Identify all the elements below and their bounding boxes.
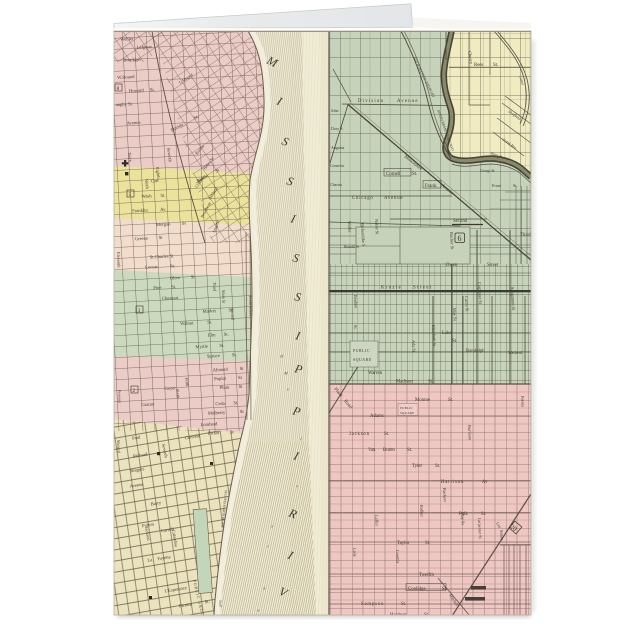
svg-text:Rees: Rees (474, 63, 483, 68)
svg-text:Third: Third (212, 282, 217, 292)
svg-text:John: John (331, 108, 339, 113)
svg-text:Elm: Elm (208, 332, 216, 337)
svg-text:anghy St.: anghy St. (116, 101, 134, 107)
svg-text:Madison: Madison (396, 380, 413, 385)
svg-text:SQUARE: SQUARE (400, 411, 414, 415)
svg-text:Reuben: Reuben (353, 295, 359, 309)
svg-text:Gratiot: Gratiot (141, 401, 155, 407)
svg-text:St.: St. (448, 398, 453, 403)
svg-text:Dory S.: Dory S. (331, 126, 343, 131)
svg-text:Carr: Carr (151, 178, 160, 183)
svg-text:Chestnut: Chestnut (162, 295, 179, 301)
svg-text:Twelfth: Twelfth (419, 573, 434, 578)
svg-text:St.: St. (219, 343, 224, 348)
svg-text:St.: St. (228, 307, 233, 312)
svg-text:Howard: Howard (129, 88, 145, 94)
svg-text:Webler: Webler (120, 36, 134, 42)
svg-text:Jackson: Jackson (349, 432, 370, 437)
svg-text:Frank.: Frank. (425, 184, 437, 189)
svg-text:Coolidge: Coolidge (408, 587, 426, 592)
svg-text:Owen: Owen (446, 263, 458, 268)
svg-text:Harrison: Harrison (441, 480, 464, 485)
svg-text:Olive: Olive (170, 275, 180, 281)
svg-text:Adams: Adams (370, 414, 384, 419)
svg-text:SQUARE: SQUARE (353, 358, 372, 362)
svg-text:Sixth: Sixth (175, 389, 181, 399)
svg-text:St.: St. (428, 380, 433, 385)
svg-text:Peoria: Peoria (520, 396, 526, 408)
svg-text:Kinzie: Kinzie (381, 286, 402, 291)
svg-text:St.: St. (204, 599, 210, 605)
svg-text:St.: St. (170, 263, 175, 268)
svg-text:Lisle: Lisle (352, 548, 357, 557)
svg-text:Trud: Trud (218, 600, 223, 607)
svg-text:PUBLIC: PUBLIC (353, 349, 370, 353)
svg-text:La: La (147, 557, 153, 563)
svg-text:Monroe: Monroe (415, 398, 430, 403)
svg-text:Spruce: Spruce (207, 353, 220, 359)
svg-text:Warren: Warren (368, 371, 383, 376)
svg-text:St.: St. (493, 63, 498, 68)
svg-text:W.Round: W.Round (117, 74, 135, 80)
svg-text:2: 2 (133, 388, 136, 394)
svg-text:St.: St. (150, 87, 155, 92)
svg-text:St.: St. (384, 432, 389, 437)
svg-text:Ceda: Ceda (215, 401, 225, 406)
svg-text:Front: Front (492, 183, 502, 188)
svg-text:Wash: Wash (141, 193, 152, 199)
svg-text:Almond: Almond (213, 367, 229, 373)
svg-text:Provost: Provost (117, 390, 122, 404)
svg-text:St.: St. (435, 464, 440, 469)
svg-text:Geyer: Geyer (164, 385, 176, 391)
svg-text:8: 8 (117, 86, 120, 92)
svg-text:Noble St: Noble St (374, 219, 380, 236)
svg-text:Lalgone: Lalgone (137, 44, 152, 50)
svg-text:Morgan: Morgan (156, 221, 171, 227)
svg-text:Menard: Menard (116, 440, 121, 454)
svg-text:Ada St: Ada St (411, 340, 417, 353)
svg-text:6: 6 (458, 234, 462, 243)
svg-text:St.: St. (401, 602, 406, 607)
svg-text:Washerd: Washerd (508, 350, 522, 355)
svg-text:Front Street: Front Street (248, 296, 254, 317)
svg-text:Brooklyn: Brooklyn (123, 57, 141, 63)
svg-text:St.: St. (232, 352, 237, 357)
svg-text:May St: May St (460, 512, 466, 526)
svg-text:Lake: Lake (442, 331, 452, 336)
svg-text:Ruckert: Ruckert (442, 488, 448, 503)
svg-text:St.: St. (407, 448, 412, 453)
svg-text:Sampson: Sampson (361, 602, 384, 607)
svg-text:St.: St. (171, 284, 176, 289)
svg-text:Cornell: Cornell (386, 172, 401, 177)
svg-text:Tyler: Tyler (412, 464, 422, 469)
svg-text:Franklin: Franklin (132, 208, 149, 214)
svg-text:St.: St. (513, 183, 518, 188)
svg-text:Lombard: Lombard (200, 421, 218, 427)
svg-text:St.: St. (207, 319, 212, 324)
svg-text:Street: Street (413, 286, 433, 291)
svg-text:St.: St. (191, 274, 196, 279)
svg-text:Buren: Buren (383, 448, 395, 453)
svg-text:Tenth: Tenth (127, 152, 133, 163)
svg-text:Pine: Pine (153, 285, 161, 290)
svg-text:St.: St. (442, 587, 447, 592)
svg-text:Picket: Picket (208, 430, 220, 436)
svg-text:May St: May St (452, 308, 458, 322)
svg-text:Main St: Main St (221, 290, 226, 304)
svg-text:5: 5 (129, 192, 132, 198)
svg-text:Avenue: Avenue (126, 120, 140, 126)
svg-text:St.: St. (224, 331, 229, 336)
svg-text:Beardsl St: Beardsl St (344, 245, 359, 249)
svg-text:Chicago: Chicago (352, 196, 374, 201)
svg-text:Laflin: Laflin (374, 515, 380, 527)
svg-text:St.: St. (353, 325, 358, 330)
svg-text:Augusta: Augusta (331, 145, 345, 150)
svg-text:Waller: Waller (347, 221, 353, 233)
svg-text:Plum: Plum (219, 385, 229, 391)
svg-text:Myrtle: Myrtle (195, 344, 208, 350)
svg-text:Locust: Locust (145, 264, 158, 270)
svg-text:Av.: Av. (160, 207, 166, 212)
svg-text:Curtis St: Curtis St (464, 296, 470, 313)
svg-text:Avenue: Avenue (384, 196, 403, 201)
svg-text:George St.: George St. (480, 169, 495, 173)
svg-text:Avenue: Avenue (397, 99, 419, 104)
svg-text:Second: Second (453, 219, 468, 224)
svg-text:Van: Van (368, 448, 376, 453)
svg-text:Taylor: Taylor (397, 541, 410, 546)
svg-text:Street: Street (499, 530, 505, 541)
svg-text:Burlison: Burlison (467, 425, 473, 441)
svg-text:St.: St. (425, 541, 430, 546)
svg-text:Greene: Greene (135, 236, 149, 242)
svg-text:Division: Division (358, 99, 384, 104)
svg-text:Rolker: Rolker (419, 505, 425, 518)
svg-text:Loomis: Loomis (395, 550, 401, 564)
svg-text:St.: St. (452, 339, 457, 344)
svg-text:Av: Av (482, 480, 488, 485)
svg-text:St.: St. (412, 172, 417, 177)
svg-text:3: 3 (138, 308, 141, 314)
svg-text:Randolph: Randolph (466, 349, 485, 354)
svg-text:Market: Market (202, 308, 216, 314)
svg-text:Cornelia: Cornelia (330, 163, 344, 168)
svg-text:Eleventh: Eleventh (116, 252, 122, 269)
svg-text:Street: Street (487, 263, 499, 268)
svg-text:St.: St. (160, 193, 165, 198)
svg-text:Mulberry: Mulberry (208, 410, 226, 416)
svg-text:Poplar: Poplar (214, 376, 227, 382)
svg-text:St.: St. (481, 512, 486, 517)
svg-text:Walnut: Walnut (180, 320, 194, 326)
svg-text:Chariss: Chariss (330, 182, 342, 187)
svg-text:Third: Third (520, 233, 531, 238)
svg-text:Bucher St: Bucher St (449, 232, 455, 250)
svg-text:PUBLIC: PUBLIC (400, 406, 414, 410)
